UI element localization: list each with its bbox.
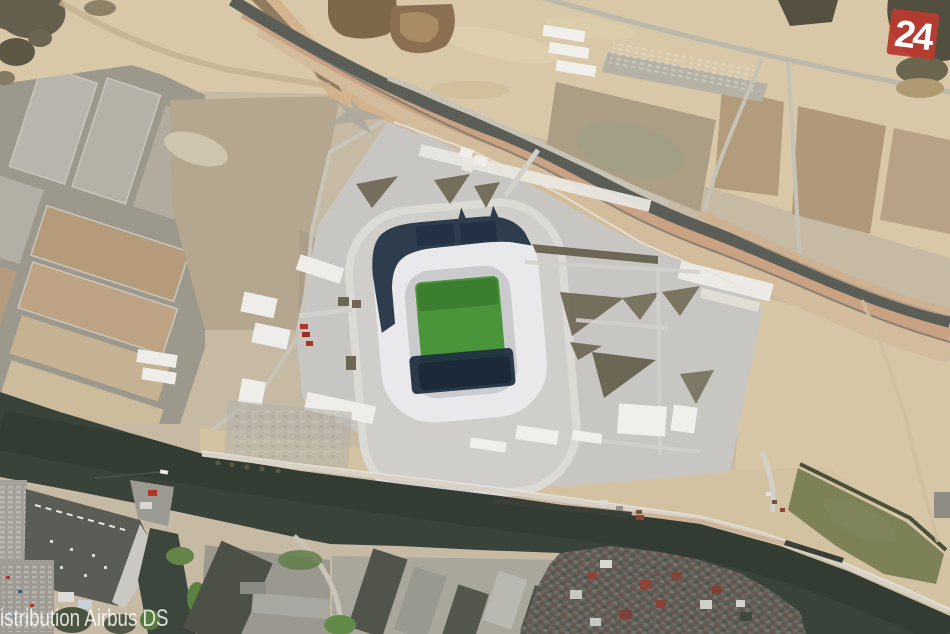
svg-text:istribution Airbus DS: istribution Airbus DS: [0, 605, 169, 632]
